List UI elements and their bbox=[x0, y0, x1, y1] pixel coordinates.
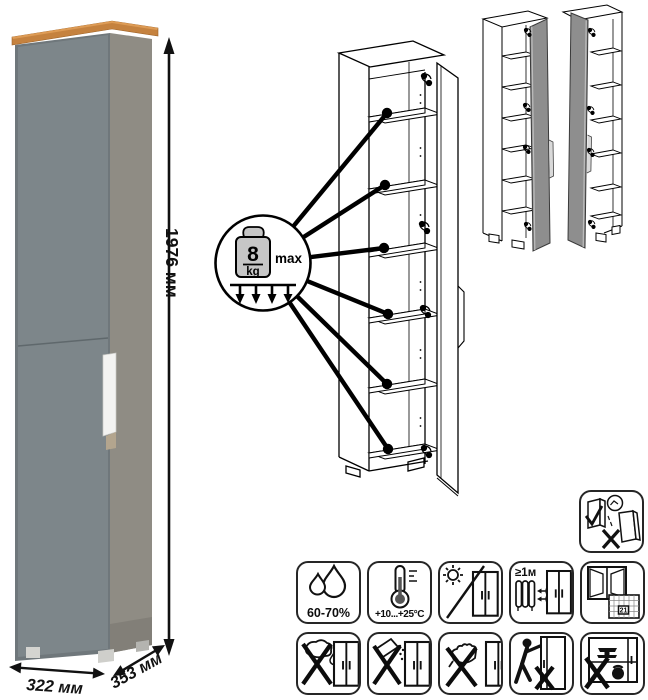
shelf-pin-holes bbox=[420, 94, 422, 427]
radiator-icon bbox=[516, 581, 535, 611]
width-dimension-label: 322 мм bbox=[26, 676, 84, 698]
open-door bbox=[437, 63, 464, 496]
height-dimension-label: 1976 мм bbox=[162, 228, 182, 298]
calendar-day-label: 21 bbox=[620, 608, 628, 615]
side-panel bbox=[110, 33, 152, 653]
interior-technical-drawing bbox=[339, 41, 464, 496]
variant-shelves bbox=[502, 52, 535, 214]
weight-unit: kg bbox=[246, 266, 259, 278]
front-door bbox=[18, 35, 108, 657]
icon-ventilation: 21 bbox=[580, 561, 645, 624]
icon-no-dragging bbox=[509, 632, 574, 695]
shelves bbox=[369, 108, 441, 459]
icon-heat-distance: ≥1м bbox=[509, 561, 574, 624]
product-instruction-sheet: 1976 мм 322 мм 353 мм bbox=[0, 0, 648, 700]
shelf-load-callout: 8 kg max bbox=[216, 108, 394, 454]
cabinet-photo bbox=[12, 21, 158, 663]
max-label: max bbox=[275, 251, 303, 266]
sun-icon bbox=[443, 565, 463, 585]
icon-no-wet-cleaning bbox=[296, 632, 361, 695]
humidity-label: 60-70% bbox=[298, 606, 359, 620]
foot bbox=[136, 640, 149, 652]
icon-no-scraping bbox=[438, 632, 503, 695]
icon-avoid-sunlight bbox=[438, 561, 503, 624]
variant-hinges bbox=[587, 28, 595, 228]
cross-mark bbox=[603, 530, 619, 548]
icon-anchor-to-wall bbox=[579, 490, 644, 553]
door-handle bbox=[103, 353, 116, 436]
person-icon bbox=[516, 639, 540, 683]
weight-value: 8 bbox=[247, 243, 259, 266]
width-arrow bbox=[20, 668, 94, 673]
variant-handle bbox=[549, 140, 554, 178]
wardrobe-icon bbox=[547, 571, 571, 613]
magnifier-circle bbox=[608, 496, 623, 511]
variant-door-right-drawing bbox=[563, 5, 622, 248]
distance-label: ≥1м bbox=[515, 567, 536, 579]
calendar-icon: 21 bbox=[609, 595, 639, 618]
variant-door-left-drawing bbox=[483, 11, 554, 251]
foot bbox=[98, 649, 114, 663]
variant-shelves bbox=[591, 48, 621, 219]
foot bbox=[26, 647, 40, 658]
wardrobe-icon bbox=[405, 642, 430, 686]
depth-dimension-label: 353 мм bbox=[107, 649, 165, 692]
icon-humidity-range: 60-70% bbox=[296, 561, 361, 624]
icon-no-overloading bbox=[580, 632, 645, 695]
icon-temperature-range: +10...+25°C bbox=[367, 561, 432, 624]
temperature-label: +10...+25°C bbox=[369, 609, 430, 620]
wardrobe-icon bbox=[473, 572, 498, 616]
leader-dots bbox=[379, 108, 393, 454]
kettlebell-icon bbox=[612, 666, 624, 679]
handle-recess bbox=[458, 286, 464, 348]
icon-no-abrasives bbox=[367, 632, 432, 695]
wardrobe-icon bbox=[486, 642, 501, 686]
wardrobe-icon bbox=[334, 642, 359, 686]
